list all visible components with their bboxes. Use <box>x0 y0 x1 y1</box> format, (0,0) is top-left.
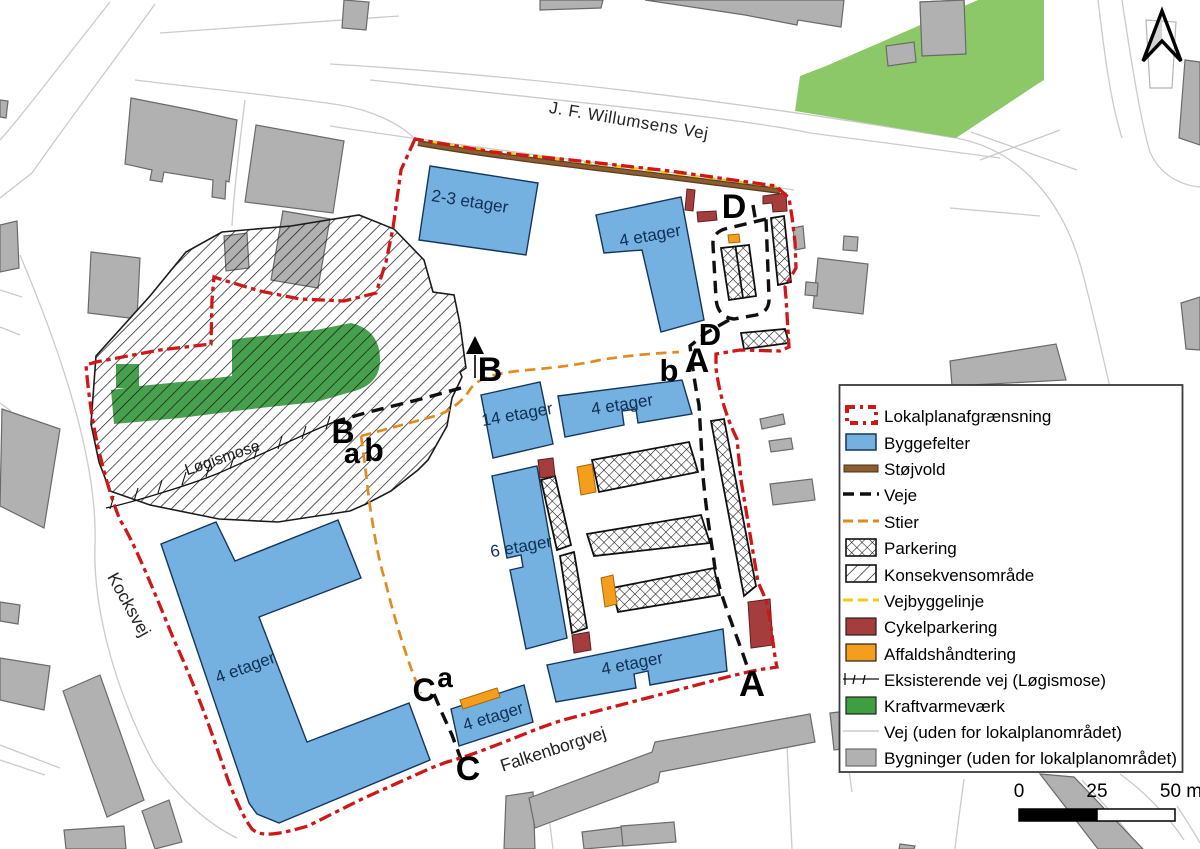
svg-text:Parkering: Parkering <box>884 539 957 558</box>
svg-text:Bygninger (uden for lokalplano: Bygninger (uden for lokalplanområdet) <box>884 749 1177 768</box>
svg-text:C: C <box>412 672 435 708</box>
svg-text:D: D <box>722 188 747 226</box>
svg-text:a: a <box>437 662 453 693</box>
svg-text:Cykelparkering: Cykelparkering <box>884 618 997 637</box>
svg-text:25: 25 <box>1086 781 1107 802</box>
svg-text:0: 0 <box>1014 781 1025 802</box>
svg-text:Konsekvensområde: Konsekvensområde <box>884 566 1034 585</box>
svg-text:Byggefelter: Byggefelter <box>884 434 970 453</box>
svg-text:b: b <box>660 353 679 388</box>
svg-text:b: b <box>364 432 384 468</box>
svg-text:Kraftvarmeværk: Kraftvarmeværk <box>884 697 1005 716</box>
svg-text:Vej (uden for lokalplanområdet: Vej (uden for lokalplanområdet) <box>884 723 1122 742</box>
svg-text:Stier: Stier <box>884 513 919 532</box>
svg-text:Veje: Veje <box>884 486 917 505</box>
svg-text:Lokalplanafgrænsning: Lokalplanafgrænsning <box>884 407 1051 426</box>
svg-text:Eksisterende vej (Løgismose): Eksisterende vej (Løgismose) <box>884 671 1106 690</box>
svg-text:A: A <box>739 663 765 704</box>
svg-text:B: B <box>478 351 503 389</box>
svg-text:Affaldshåndtering: Affaldshåndtering <box>884 645 1016 664</box>
svg-text:a: a <box>344 438 361 470</box>
svg-text:C: C <box>456 750 481 788</box>
svg-text:Vejbyggelinje: Vejbyggelinje <box>884 592 984 611</box>
svg-text:Støjvold: Støjvold <box>884 460 945 479</box>
svg-text:A: A <box>685 342 710 380</box>
svg-text:50 m: 50 m <box>1160 781 1200 802</box>
